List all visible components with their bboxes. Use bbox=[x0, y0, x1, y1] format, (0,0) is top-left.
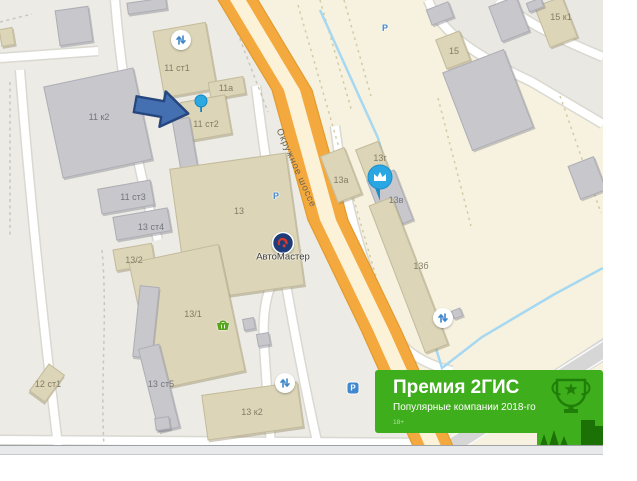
banner-age-rating: 18+ bbox=[393, 419, 404, 426]
building-label: 15 к1 bbox=[550, 12, 571, 22]
gate-arrows-icon[interactable] bbox=[433, 308, 453, 328]
building-label: 13 ст4 bbox=[138, 222, 164, 232]
gate-arrows-icon[interactable] bbox=[171, 30, 191, 50]
paid-parking-badge-icon[interactable]: P bbox=[348, 383, 359, 394]
building-shed-3[interactable] bbox=[154, 416, 171, 431]
building-label: 13 к2 bbox=[241, 407, 262, 417]
trees-silhouette bbox=[540, 420, 603, 446]
trophy-icon bbox=[537, 372, 603, 452]
building-label: 13г bbox=[373, 153, 386, 163]
crown-marker-icon[interactable] bbox=[366, 164, 394, 209]
gate-arrows-icon[interactable] bbox=[275, 373, 295, 393]
building-label: 13/1 bbox=[184, 309, 202, 319]
building-label: 13б bbox=[413, 261, 428, 271]
building-label: 11а bbox=[219, 83, 233, 93]
window-bottom-edge bbox=[0, 445, 603, 455]
parking-icon[interactable]: P bbox=[273, 191, 279, 201]
building-small-nw[interactable] bbox=[55, 6, 94, 46]
building-label: 12 ст1 bbox=[35, 379, 61, 389]
location-pin-icon[interactable] bbox=[193, 94, 209, 119]
building-shed-1[interactable] bbox=[242, 317, 256, 331]
banner-subtitle: Популярные компании 2018-го bbox=[393, 402, 536, 413]
building-shed-2[interactable] bbox=[256, 332, 271, 347]
banner-title: Премия 2ГИС bbox=[393, 377, 519, 399]
building-label: 11 ст1 bbox=[164, 63, 189, 73]
building-label: 13/2 bbox=[125, 255, 143, 265]
building-label: 15 bbox=[449, 46, 459, 56]
firm-label[interactable]: АвтоМастер bbox=[256, 252, 310, 263]
building-label: 11 ст2 bbox=[193, 119, 218, 129]
shop-basket-icon[interactable] bbox=[215, 318, 231, 337]
building-label: 13 ст5 bbox=[148, 379, 174, 389]
building-label: 13 bbox=[234, 206, 244, 216]
building-label: 11 ст3 bbox=[120, 192, 145, 202]
parking-icon[interactable]: P bbox=[382, 23, 388, 33]
building-label: 13а bbox=[333, 175, 348, 185]
building-label: 11 к2 bbox=[89, 112, 110, 122]
screenshot-root: 11 к2 11 ст1 11а 11 ст2 11 ст3 13 ст4 13… bbox=[0, 0, 637, 481]
